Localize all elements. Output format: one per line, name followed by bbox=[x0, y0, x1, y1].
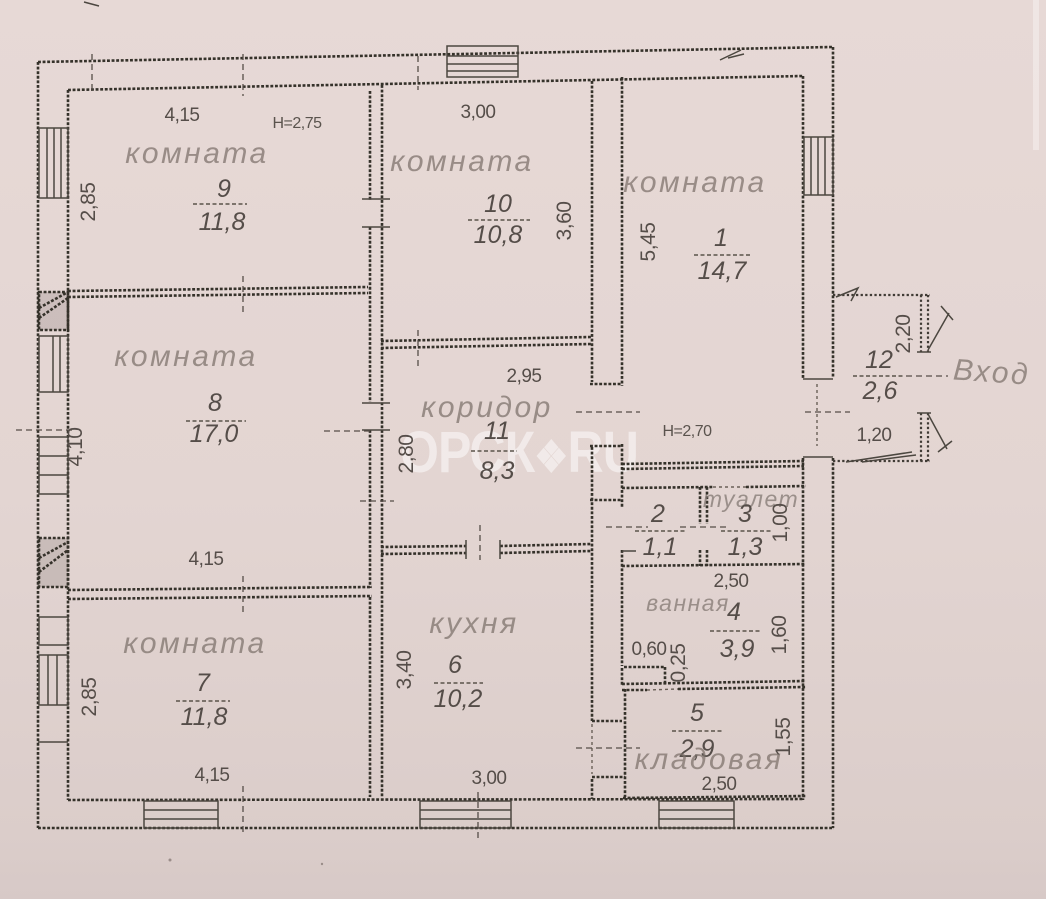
svg-text:11,8: 11,8 bbox=[199, 208, 246, 236]
svg-text:7: 7 bbox=[196, 669, 211, 697]
svg-text:1,1: 1,1 bbox=[643, 533, 678, 561]
svg-text:10: 10 bbox=[484, 190, 512, 218]
svg-text:11: 11 bbox=[484, 417, 510, 445]
svg-text:9: 9 bbox=[217, 175, 231, 203]
svg-text:2,80: 2,80 bbox=[395, 435, 418, 474]
svg-text:4: 4 bbox=[727, 598, 741, 626]
svg-text:2: 2 bbox=[650, 500, 665, 528]
svg-text:1,3: 1,3 bbox=[728, 533, 763, 561]
svg-text:2,20: 2,20 bbox=[892, 315, 915, 354]
svg-text:17,0: 17,0 bbox=[190, 420, 239, 448]
svg-text:8: 8 bbox=[208, 389, 222, 417]
svg-text:1: 1 bbox=[714, 224, 728, 252]
svg-text:2,85: 2,85 bbox=[77, 183, 100, 222]
svg-text:3,00: 3,00 bbox=[472, 768, 507, 789]
svg-text:6: 6 bbox=[448, 651, 462, 679]
svg-text:12: 12 bbox=[865, 346, 893, 374]
svg-text:1,00: 1,00 bbox=[769, 504, 792, 543]
svg-text:11,8: 11,8 bbox=[181, 703, 228, 731]
svg-text:комната: комната bbox=[623, 166, 766, 199]
svg-text:1,60: 1,60 bbox=[768, 616, 791, 655]
svg-text:2,50: 2,50 bbox=[702, 774, 737, 795]
svg-text:Н=2,75: Н=2,75 bbox=[272, 115, 322, 132]
svg-text:3,60: 3,60 bbox=[553, 202, 576, 241]
svg-text:3,00: 3,00 bbox=[461, 102, 496, 123]
svg-text:5,45: 5,45 bbox=[637, 223, 660, 262]
svg-text:1,55: 1,55 bbox=[772, 718, 795, 757]
svg-text:5: 5 bbox=[690, 699, 704, 727]
svg-text:комната: комната bbox=[125, 137, 268, 170]
svg-text:4,15: 4,15 bbox=[165, 105, 200, 126]
svg-text:8,3: 8,3 bbox=[480, 457, 515, 485]
svg-text:ванная: ванная bbox=[646, 590, 730, 616]
svg-text:10,8: 10,8 bbox=[474, 221, 523, 249]
svg-text:10,2: 10,2 bbox=[434, 685, 483, 713]
svg-text:1,20: 1,20 bbox=[857, 425, 892, 446]
svg-text:кладовая: кладовая bbox=[635, 743, 784, 776]
svg-text:ОРСК❖RU: ОРСК❖RU bbox=[400, 420, 638, 485]
svg-text:2,95: 2,95 bbox=[507, 366, 542, 387]
svg-text:14,7: 14,7 bbox=[698, 257, 748, 285]
svg-text:2,85: 2,85 bbox=[78, 678, 101, 717]
svg-text:4,15: 4,15 bbox=[189, 549, 224, 570]
svg-text:3: 3 bbox=[738, 500, 752, 528]
svg-text:3,9: 3,9 bbox=[720, 635, 755, 663]
svg-text:Н=2,70: Н=2,70 bbox=[662, 423, 712, 440]
svg-text:3,40: 3,40 bbox=[393, 651, 416, 690]
svg-text:4,15: 4,15 bbox=[195, 765, 230, 786]
svg-text:2,6: 2,6 bbox=[862, 377, 898, 405]
svg-text:0,60: 0,60 bbox=[632, 639, 667, 660]
svg-text:0,25: 0,25 bbox=[667, 644, 690, 683]
svg-text:2,50: 2,50 bbox=[714, 571, 749, 592]
svg-text:комната: комната bbox=[114, 340, 257, 373]
svg-text:комната: комната bbox=[123, 627, 266, 660]
svg-text:4,10: 4,10 bbox=[64, 428, 87, 467]
svg-text:комната: комната bbox=[390, 145, 533, 178]
svg-text:Вход: Вход bbox=[952, 353, 1031, 391]
svg-text:кухня: кухня bbox=[429, 607, 518, 640]
